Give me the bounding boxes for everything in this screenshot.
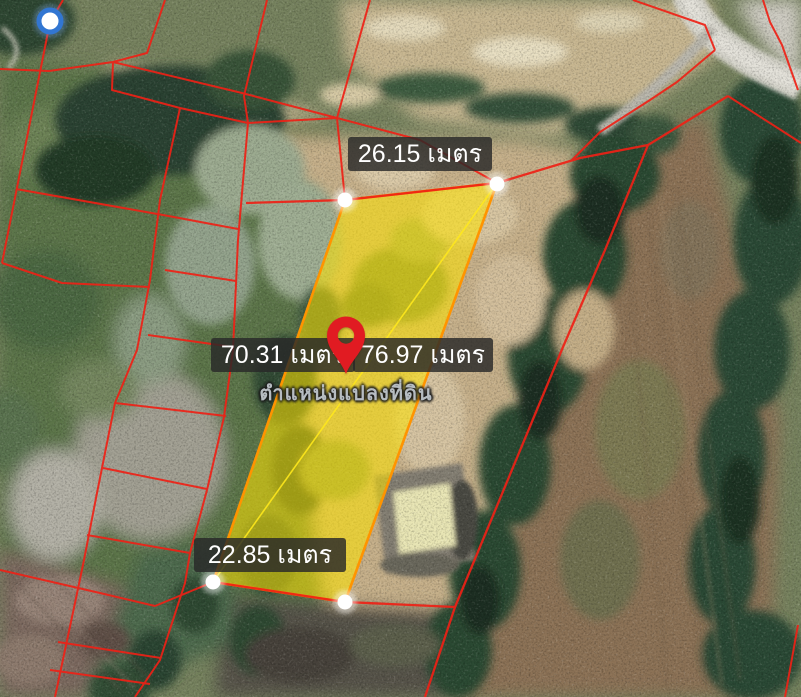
measurement-label-right: 76.97 เมตร	[353, 338, 493, 372]
vertex-marker[interactable]	[201, 570, 225, 594]
vertex-marker[interactable]	[485, 172, 509, 196]
location-pin-icon[interactable]	[323, 314, 369, 376]
measurement-label-top: 26.15 เมตร	[348, 137, 492, 171]
vertex-marker[interactable]	[333, 188, 357, 212]
gps-location-dot	[33, 4, 67, 38]
parcel-caption: ตำแหน่งแปลงที่ดิน	[259, 377, 432, 409]
map-viewport[interactable]: 26.15 เมตร 70.31 เมตร 76.97 เมตร 22.85 เ…	[0, 0, 801, 697]
measurement-label-bottom: 22.85 เมตร	[194, 538, 346, 572]
vertex-marker[interactable]	[333, 590, 357, 614]
